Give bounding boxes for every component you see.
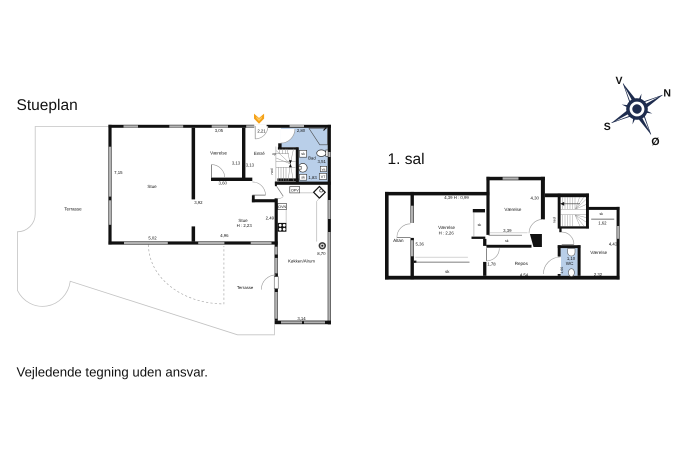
svg-text:Værelse: Værelse [504, 207, 521, 212]
svg-text:sk: sk [478, 223, 482, 227]
svg-text:2,21: 2,21 [257, 129, 266, 134]
svg-text:Terrasse: Terrasse [237, 285, 254, 290]
svg-text:Terrasse: Terrasse [64, 207, 82, 212]
svg-text:H : 2,23: H : 2,23 [237, 223, 253, 228]
svg-text:sk: sk [301, 176, 305, 180]
svg-text:op: op [272, 152, 276, 156]
svg-text:1,10: 1,10 [567, 256, 576, 261]
svg-text:ned: ned [270, 169, 274, 175]
svg-text:Repos: Repos [515, 261, 529, 266]
svg-text:4,43: 4,43 [609, 242, 618, 247]
svg-text:7,15: 7,15 [114, 170, 123, 175]
svg-text:Altan: Altan [393, 238, 404, 243]
svg-text:4,30: 4,30 [531, 196, 540, 201]
svg-text:4,39 H : 0,99: 4,39 H : 0,99 [444, 195, 469, 200]
svg-text:Værelse: Værelse [210, 151, 227, 156]
svg-text:1,66: 1,66 [560, 267, 564, 274]
svg-text:va: va [322, 167, 326, 171]
svg-text:3,13: 3,13 [232, 160, 241, 165]
svg-text:3,39: 3,39 [503, 228, 512, 233]
svg-text:2,49: 2,49 [266, 215, 275, 220]
svg-text:sk: sk [600, 212, 604, 216]
svg-text:5,02: 5,02 [148, 236, 157, 241]
svg-text:1,62: 1,62 [598, 221, 607, 226]
svg-text:Køkken/Alrum: Køkken/Alrum [288, 259, 315, 264]
svg-text:3,92: 3,92 [194, 200, 203, 205]
svg-text:1,78: 1,78 [487, 262, 496, 267]
svg-text:WC: WC [566, 261, 574, 266]
svg-text:Stueplan: Stueplan [17, 97, 78, 114]
svg-text:H : 2,26: H : 2,26 [439, 230, 455, 235]
svg-text:Entré: Entré [254, 151, 265, 156]
svg-text:sk: sk [301, 152, 305, 156]
svg-text:Ø: Ø [651, 136, 659, 148]
svg-text:3,60: 3,60 [219, 181, 228, 186]
svg-text:V: V [615, 75, 622, 87]
svg-text:Værelse: Værelse [590, 250, 607, 255]
svg-text:VT: VT [321, 175, 326, 179]
svg-text:3,14: 3,14 [297, 316, 306, 321]
svg-text:OVN: OVN [278, 205, 286, 209]
svg-text:3,51: 3,51 [318, 159, 327, 164]
svg-text:sk: sk [505, 239, 509, 243]
svg-text:Vejledende tegning uden ansvar: Vejledende tegning uden ansvar. [17, 365, 208, 380]
svg-text:1. sal: 1. sal [388, 151, 425, 168]
svg-text:Stue: Stue [147, 184, 157, 189]
svg-text:1,83: 1,83 [308, 175, 317, 180]
svg-text:4,96: 4,96 [220, 233, 229, 238]
svg-text:Bad: Bad [308, 155, 316, 160]
svg-text:4,54: 4,54 [520, 272, 529, 277]
svg-text:3,05: 3,05 [215, 128, 224, 133]
svg-text:5,36: 5,36 [416, 241, 425, 246]
svg-text:2,80: 2,80 [297, 128, 306, 133]
svg-text:2,32: 2,32 [594, 272, 603, 277]
svg-text:S: S [604, 121, 611, 133]
svg-text:8,70: 8,70 [317, 251, 326, 256]
svg-text:Værelse: Værelse [438, 225, 455, 230]
svg-text:OPV: OPV [291, 188, 299, 192]
svg-text:3,13: 3,13 [246, 162, 255, 167]
svg-text:ned: ned [552, 217, 556, 223]
svg-text:N: N [663, 88, 671, 100]
